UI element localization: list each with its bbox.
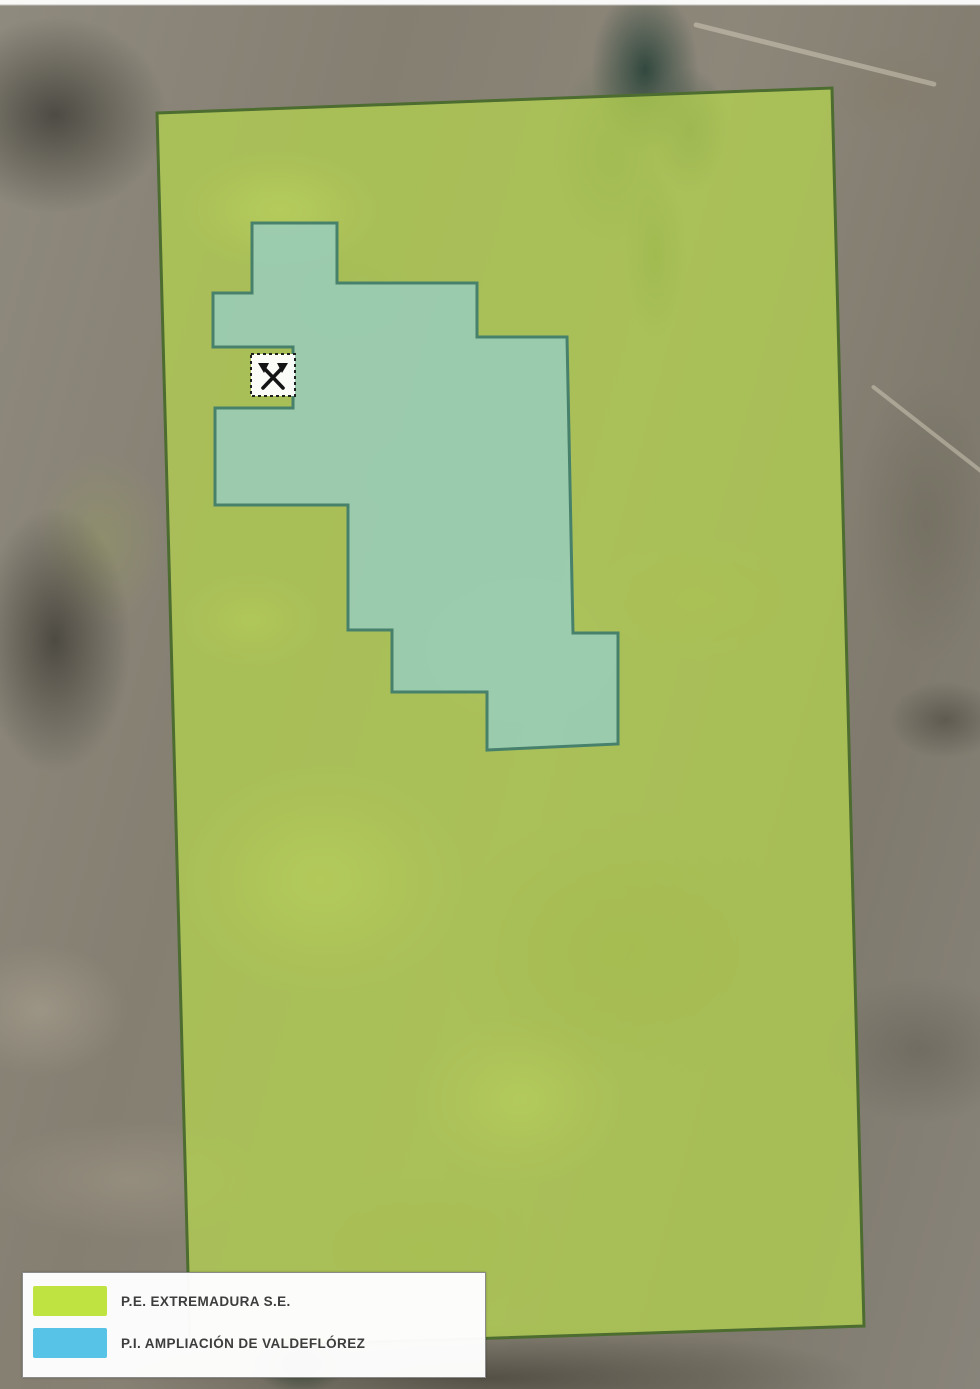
legend-item-extremadura: P.E. EXTREMADURA S.E. (33, 1286, 291, 1316)
legend-swatch-blue (33, 1328, 107, 1358)
legend-label: P.E. EXTREMADURA S.E. (121, 1294, 291, 1309)
permit-overlay (0, 0, 980, 1389)
map-figure: P.E. EXTREMADURA S.E. P.I. AMPLIACIÓN DE… (0, 0, 980, 1389)
legend-label: P.I. AMPLIACIÓN DE VALDEFLÓREZ (121, 1336, 365, 1351)
legend-item-valdeflorez: P.I. AMPLIACIÓN DE VALDEFLÓREZ (33, 1328, 365, 1358)
legend-swatch-green (33, 1286, 107, 1316)
mine-marker (251, 354, 295, 396)
legend: P.E. EXTREMADURA S.E. P.I. AMPLIACIÓN DE… (22, 1272, 486, 1378)
